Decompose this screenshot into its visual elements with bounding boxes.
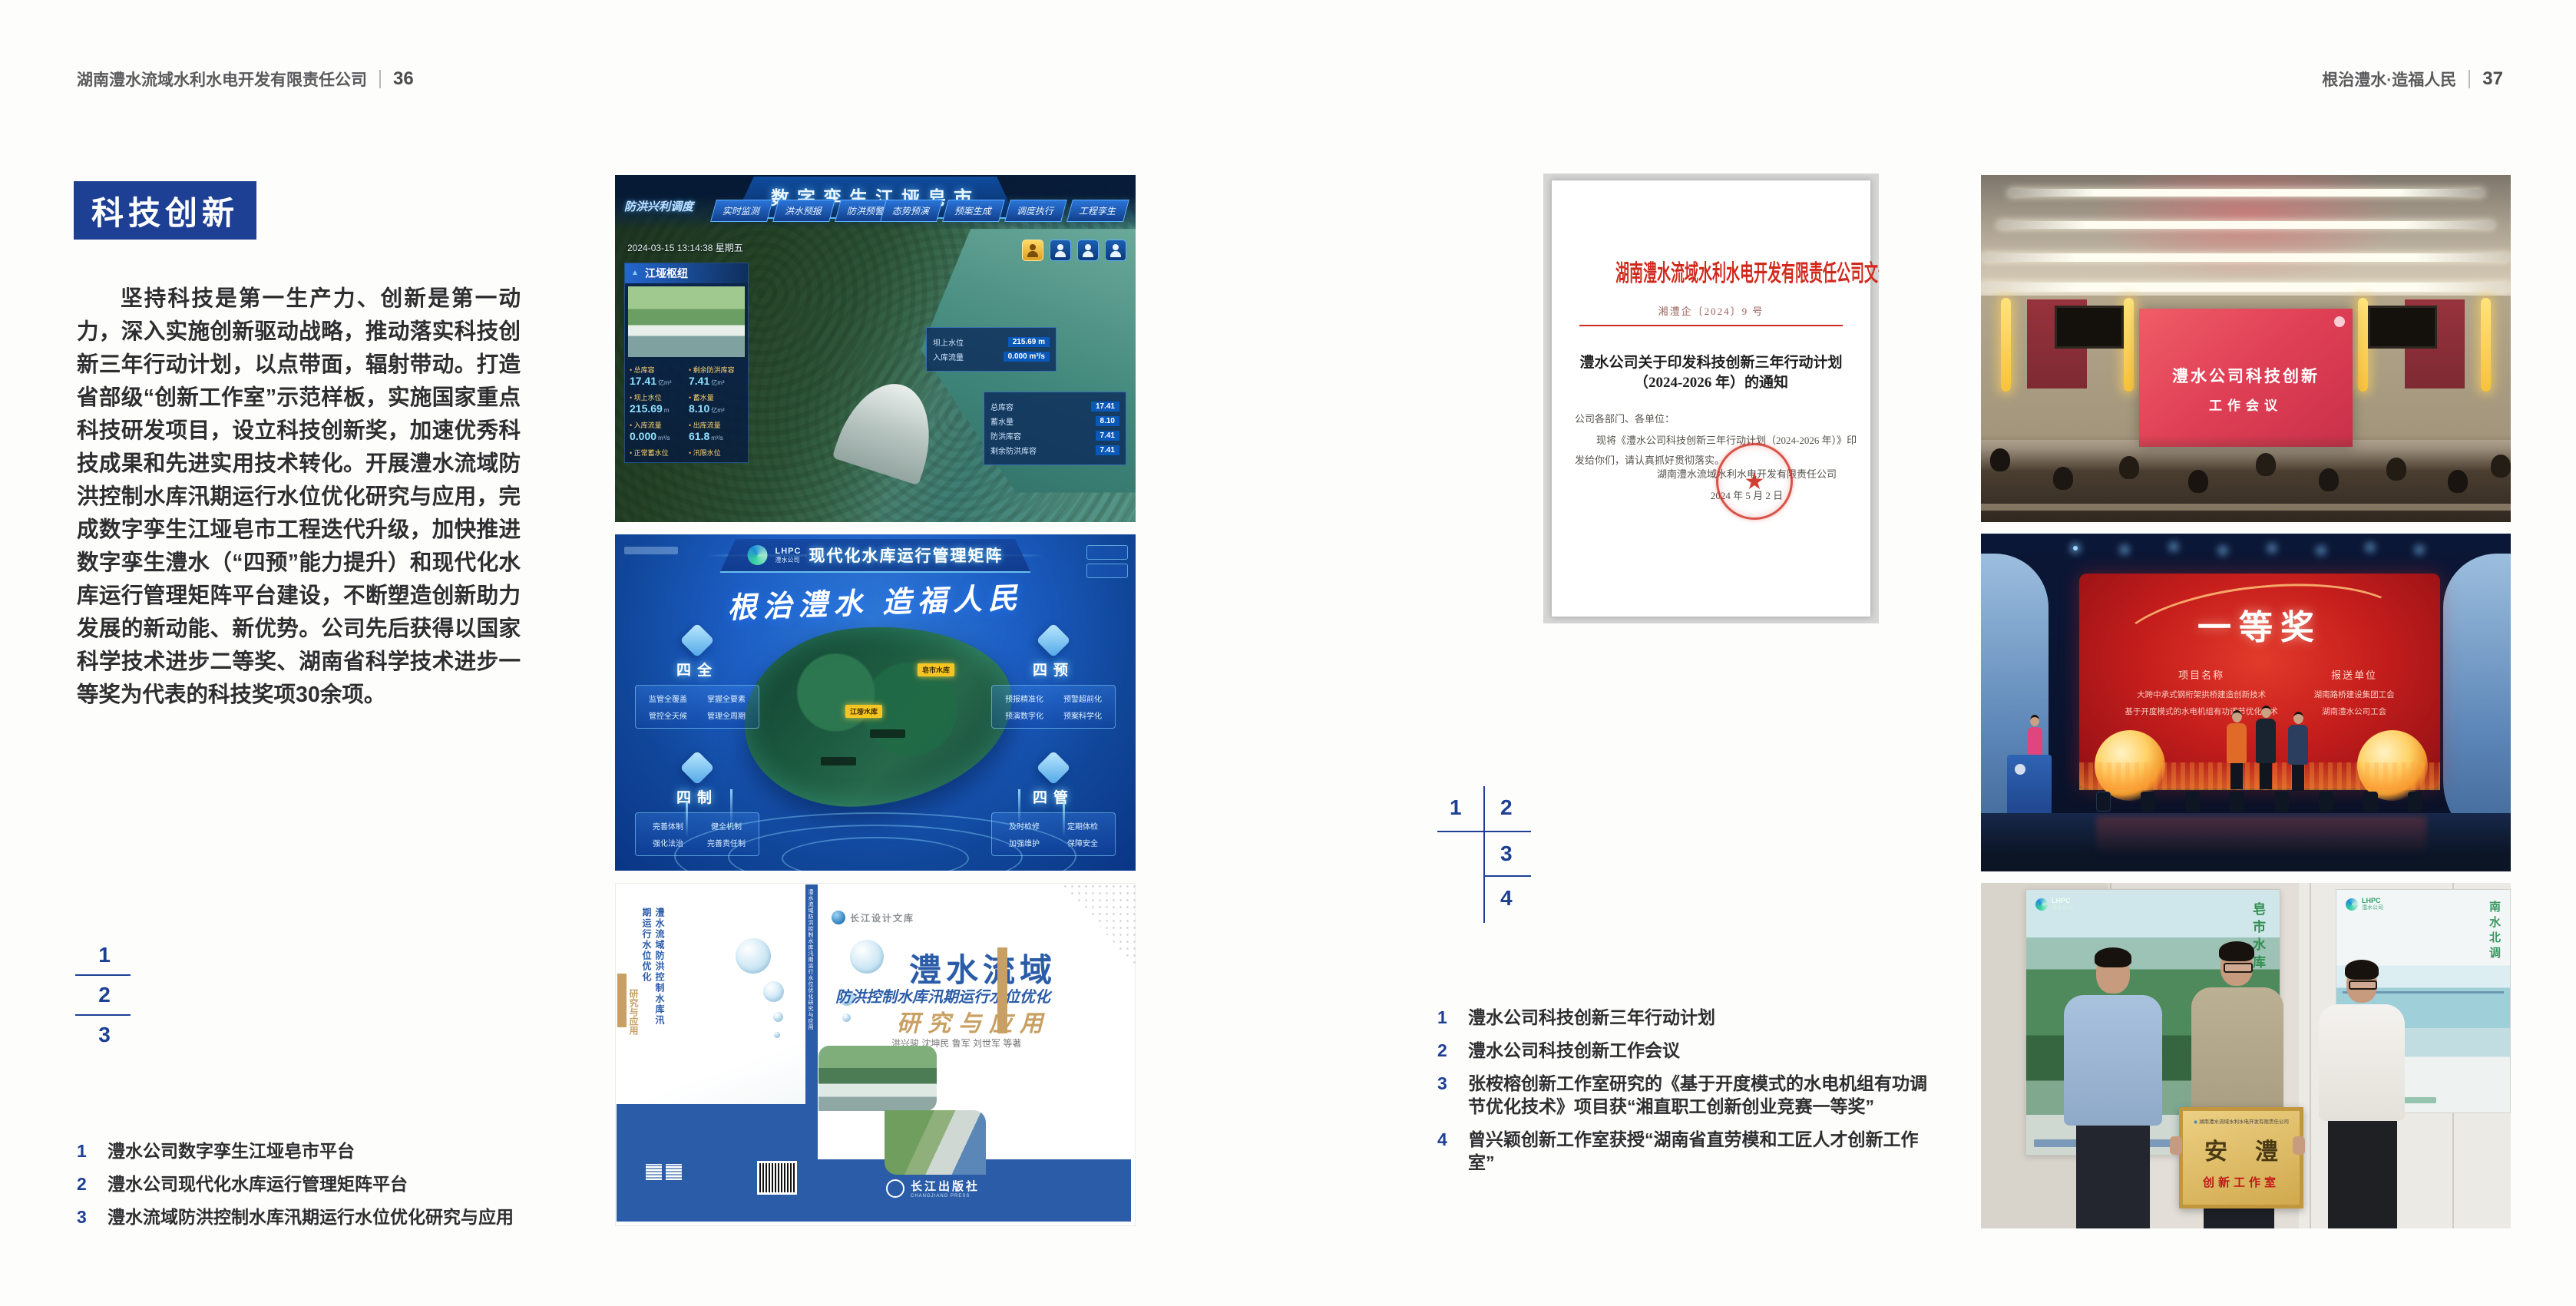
plaque-char: 安 <box>2204 1132 2227 1166</box>
panel-icon <box>1036 750 1070 785</box>
bubble-decoration <box>774 1032 780 1038</box>
figure-innovation-meeting: 澧水公司科技创新 工作会议 <box>1981 175 2511 522</box>
person-head <box>2096 954 2130 994</box>
bubble-decoration <box>850 940 884 974</box>
spine-title: 澧水流域防洪控制水库汛期运行水位优化研究与应用 <box>806 889 814 1119</box>
panel-item: 管理全周期 <box>699 709 754 721</box>
publisher-logo: 长江出版社 CHANGJIANG PRESS <box>886 1178 980 1199</box>
wall-lamp <box>2124 298 2134 392</box>
matrix-panel-siquan: 四全 监管全覆盖 掌握全要素 管控全天候 管理全周期 <box>635 628 759 729</box>
document-salutation: 公司各部门、各单位： <box>1575 411 1675 425</box>
ceremony-host <box>2025 715 2044 755</box>
caption-text: 澧水公司现代化水库运行管理矩阵平台 <box>107 1172 408 1195</box>
floor-reflection <box>2096 816 2426 856</box>
light-pillar <box>686 802 688 837</box>
wall-lamp <box>2001 298 2011 392</box>
caption-item: 2 澧水公司现代化水库运行管理矩阵平台 <box>77 1172 553 1195</box>
matrix-panel-button <box>1086 564 1128 578</box>
stat-label: 剩余防洪库容 <box>689 365 743 375</box>
stat-item: 入库流量 0.000m³/s <box>630 420 684 444</box>
poster-logo: LHPC 澧水公司 <box>2346 898 2383 911</box>
unit-name: 湖南路桥建设集团工会 <box>2314 689 2395 700</box>
person-head <box>2221 947 2253 986</box>
figure-key-divider <box>1437 831 1531 832</box>
station-panel-title: 江垭枢纽 <box>625 263 748 283</box>
logo-company: 澧水公司 <box>775 557 802 564</box>
dashboard-tab: 洪水预报 <box>772 200 835 222</box>
award-presenter <box>2254 706 2277 789</box>
summary-label: 蓄水量 <box>990 415 1014 427</box>
header-divider <box>2469 70 2470 88</box>
caption-text: 澧水公司科技创新工作会议 <box>1468 1039 1680 1062</box>
lhpc-logo-text: LHPC 澧水公司 <box>775 547 802 564</box>
header-divider <box>379 70 381 88</box>
panel-card: 监管全覆盖 掌握全要素 管控全天候 管理全周期 <box>635 685 759 729</box>
figure-book-cover: 澧水流域防洪控制水库汛期运行水位优化 研究与应用 澧水流域防洪控制水库汛期运行水… <box>615 883 1136 1226</box>
panel-card: 预报精准化 预警超前化 预演数字化 预案科学化 <box>991 685 1116 729</box>
summary-value: 7.41 <box>1096 431 1119 441</box>
stat-unit: m³/s <box>658 435 670 441</box>
logo-acronym: LHPC <box>775 547 802 557</box>
dashboard-tab: 态势预演 <box>880 200 943 222</box>
stat-unit: m³/s <box>711 435 723 441</box>
figure-official-document: 湖南澧水流域水利水电开发有限责任公司文件 湘澧企〔2024〕9 号 澧水公司关于… <box>1543 174 1879 623</box>
hand <box>2293 1136 2305 1155</box>
stat-label: 蓄水量 <box>689 392 743 402</box>
ceiling-light <box>2008 189 2485 197</box>
float-value: 215.69 m <box>1008 337 1050 347</box>
wall-lamp <box>2358 298 2368 392</box>
caption-number: 3 <box>1437 1072 1453 1118</box>
changjiang-design-logo-icon <box>832 911 845 924</box>
panel-title: 四管 <box>991 786 1116 807</box>
matrix-panel-button <box>1086 545 1128 560</box>
document-body-line1: 现将《澧水公司科技创新三年行动计划（2024-2026 年）》印 <box>1596 432 1857 447</box>
logo-acronym: LHPC <box>2362 898 2383 905</box>
bubble-decoration <box>842 1013 851 1022</box>
ceiling-light <box>1997 221 2495 229</box>
float-label: 坝上水位 <box>933 336 964 348</box>
caption-number: 2 <box>77 1172 92 1195</box>
minor-marker <box>870 729 905 738</box>
dashboard-float-card: 坝上水位215.69 m 入库流量0.000 m³/s <box>926 327 1057 372</box>
person-trousers <box>2328 1121 2397 1228</box>
barcode <box>757 1161 797 1195</box>
meeting-screen-title: 澧水公司科技创新 <box>2139 364 2353 387</box>
dashboard-tab: 预案生成 <box>942 200 1005 222</box>
summary-label: 剩余防洪库容 <box>990 445 1037 456</box>
matrix-panel-siyu: 四预 预报精准化 预警超前化 预演数字化 预案科学化 <box>991 628 1116 729</box>
logo-company: 澧水公司 <box>2362 905 2383 911</box>
series-name: 长江设计文库 <box>850 911 914 924</box>
caption-text: 澧水公司科技创新三年行动计划 <box>1468 1006 1715 1029</box>
summary-label: 总库容 <box>990 401 1014 412</box>
caption-number: 1 <box>77 1139 92 1162</box>
matrix-slogan: 根治澧水 造福人民 <box>726 574 1023 626</box>
station-stats: 总库容 17.41亿m³ 剩余防洪库容 7.41亿m³ 坝上水位 215.69m… <box>625 360 748 462</box>
figure-award-ceremony: 一等奖 项目名称 大跨中承式钢桁架拱桥建造创新技术 基于开度模式的水电机组有功调… <box>1981 534 2511 871</box>
person-shirt <box>2319 1004 2405 1121</box>
panel-item: 预案科学化 <box>1055 709 1110 721</box>
light-pillar <box>1018 789 1020 825</box>
station-thumbnail <box>628 286 745 357</box>
figure-key-2: 2 <box>75 978 134 1012</box>
person-trousers <box>2076 1126 2150 1228</box>
unit-name: 湖南澧水公司工会 <box>2314 706 2395 717</box>
right-page-number: 37 <box>2482 68 2503 90</box>
lhpc-logo-icon <box>748 545 768 565</box>
person-left <box>2050 954 2181 1228</box>
left-caption-list: 1 澧水公司数字孪生江垭皂市平台 2 澧水公司现代化水库运行管理矩阵平台 3 澧… <box>77 1139 553 1238</box>
poster-logo: LHPC 澧水公司 <box>2035 898 2073 911</box>
section-body-text: 坚持科技是第一生产力、创新是第一动力，深入实施创新驱动战略，推动落实科技创新三年… <box>77 283 521 712</box>
official-seal: ★ <box>1716 443 1793 520</box>
summary-value: 17.41 <box>1091 402 1119 412</box>
meeting-screen-subtitle: 工作会议 <box>2139 395 2353 414</box>
figure-reservoir-matrix: LHPC 澧水公司 现代化水库运行管理矩阵 根治澧水 造福人民 皂市水库 江垭水… <box>615 534 1136 871</box>
logo-company: 澧水公司 <box>2052 905 2073 911</box>
locate-icon <box>1077 240 1099 261</box>
publisher-logo-icon <box>886 1179 904 1198</box>
stat-label: 坝上水位 <box>630 392 684 402</box>
caption-item: 1 澧水公司科技创新三年行动计划 <box>1437 1006 1959 1029</box>
summary-label: 防洪库容 <box>990 430 1021 441</box>
wall-lamp <box>2481 298 2491 392</box>
seal-star-icon: ★ <box>1744 468 1765 495</box>
audience-heads <box>1990 448 2010 471</box>
stat-item: 汛限水位 <box>689 448 743 458</box>
alert-icon <box>1105 240 1126 261</box>
stat-unit: 亿m³ <box>658 379 671 386</box>
back-tan-bar <box>617 974 627 1027</box>
caption-text: 曾兴颖创新工作室获授“湖南省直劳模和工匠人才创新工作室” <box>1468 1128 1940 1174</box>
reservoir-marker: 皂市水库 <box>918 663 954 676</box>
document-title-line2: （2024-2026 年）的通知 <box>1552 371 1870 392</box>
figure-digital-twin-dashboard: 数字孪生江垭皂市 防洪兴利调度 实时监测 洪水预报 防洪预警 态势预演 预案生成… <box>615 175 1136 522</box>
stat-item: 蓄水量 8.10亿m³ <box>689 392 743 416</box>
stat-label: 正常蓄水位 <box>630 448 684 458</box>
caption-text: 澧水流域防洪控制水库汛期运行水位优化研究与应用 <box>107 1205 514 1228</box>
dam-photo-1 <box>818 1046 937 1111</box>
figure-key-1: 1 <box>75 938 134 972</box>
figure-key-1: 1 <box>1450 795 1462 820</box>
bubble-decoration <box>763 981 784 1002</box>
plaque-subtitle: 创新工作室 <box>2183 1174 2300 1190</box>
figure-key-divider <box>1483 786 1485 923</box>
stage-light-fixtures <box>2096 792 2111 812</box>
panel-item: 预警超前化 <box>1055 693 1110 704</box>
document-number: 湘澧企〔2024〕9 号 <box>1552 303 1870 318</box>
figure-key-3: 3 <box>75 1018 134 1052</box>
section-title: 科技创新 <box>74 181 256 240</box>
figure-key-divider <box>1483 875 1531 877</box>
figure-key-3: 3 <box>1500 841 1513 866</box>
award-winner <box>2225 710 2248 789</box>
publisher-name-en: CHANGJIANG PRESS <box>911 1194 980 1199</box>
stat-item: 总库容 17.41亿m³ <box>630 365 684 388</box>
right-caption-list: 1 澧水公司科技创新三年行动计划 2 澧水公司科技创新工作会议 3 张桉榕创新工… <box>1437 1006 1959 1184</box>
figure-key-divider <box>75 974 131 976</box>
stat-item: 坝上水位 215.69m <box>630 392 684 416</box>
stat-label: 出库流量 <box>689 420 743 430</box>
stat-label: 总库容 <box>630 365 684 375</box>
dashboard-toolbar <box>1022 240 1126 261</box>
lhpc-logo-icon <box>2035 898 2048 911</box>
stat-label: 入库流量 <box>630 420 684 430</box>
dashboard-right-tabs: 态势预演 预案生成 调度执行 工程孪生 <box>883 200 1126 222</box>
stage-spotlights <box>2073 546 2078 551</box>
ceiling-light <box>1981 283 2511 292</box>
user-icon <box>1022 240 1043 261</box>
right-figure-number-key: 1 2 3 4 <box>1434 782 1542 935</box>
book-title-sub: 防洪控制水库汛期运行水位优化 <box>835 984 1050 1007</box>
caption-item: 3 澧水流域防洪控制水库汛期运行水位优化研究与应用 <box>77 1205 553 1228</box>
caption-item: 2 澧水公司科技创新工作会议 <box>1437 1039 1959 1062</box>
back-vertical-subtitle: 研究与应用 <box>627 989 640 1043</box>
light-pillar <box>1063 802 1065 837</box>
light-pillar <box>730 789 732 825</box>
panel-title: 四预 <box>991 659 1116 679</box>
stat-value: 17.41 <box>630 375 656 387</box>
float-value: 0.000 m³/s <box>1004 352 1050 362</box>
stage-side-panel <box>2443 554 2511 850</box>
book-title-tail: 研究与应用 <box>897 1004 1050 1038</box>
bubble-decoration <box>773 1012 783 1022</box>
dashboard-tab: 工程孪生 <box>1066 200 1129 222</box>
meeting-projection-screen: 澧水公司科技创新 工作会议 <box>2139 309 2353 447</box>
right-page-header: 根治澧水·造福人民 37 <box>2322 68 2503 91</box>
figure-workshop-plaque: LHPC 澧水公司 皂市水库 LHPC 澧水公司 南水北调 <box>1981 883 2511 1228</box>
stat-unit: m <box>664 407 670 414</box>
caption-text: 张桉榕创新工作室研究的《基于开度模式的水电机组有功调节优化技术》项目获“湘直职工… <box>1468 1072 1940 1118</box>
summary-value: 7.41 <box>1096 445 1119 455</box>
document-title-line1: 澧水公司关于印发科技创新三年行动计划 <box>1552 351 1870 372</box>
panel-icon <box>680 750 714 785</box>
dashboard-tab: 调度执行 <box>1004 200 1067 222</box>
stat-unit: 亿m³ <box>711 379 724 386</box>
document-red-header: 湖南澧水流域水利水电开发有限责任公司文件 <box>1615 254 1807 288</box>
stat-value: 7.41 <box>689 375 709 387</box>
panel-item: 预演数字化 <box>997 709 1052 721</box>
stat-item: 出库流量 61.8m³/s <box>689 420 743 444</box>
caption-number: 1 <box>1437 1006 1453 1029</box>
back-vertical-title: 澧水流域防洪控制水库汛期运行水位优化 <box>640 908 666 1030</box>
ceiling-light <box>1981 253 2511 262</box>
panel-icon <box>1036 623 1070 657</box>
panel-icon <box>680 623 714 657</box>
front-tan-bar <box>997 947 1007 1033</box>
dashboard-tab: 实时监测 <box>710 200 773 222</box>
award-winner <box>2287 712 2310 791</box>
panel-title: 四全 <box>635 659 759 679</box>
bubble-decoration <box>736 938 771 974</box>
figure-key-4: 4 <box>1500 886 1513 911</box>
wall-tv-screen <box>2055 306 2124 349</box>
plaque-char: 澧 <box>2255 1132 2278 1166</box>
float-label: 入库流量 <box>933 351 964 362</box>
stat-item: 正常蓄水位 <box>630 448 684 458</box>
publisher-name: 长江出版社 <box>911 1178 980 1194</box>
left-figure-number-key: 1 2 3 <box>75 938 134 1052</box>
panel-item: 监管全覆盖 <box>640 693 696 704</box>
hand <box>2170 1136 2182 1155</box>
poster-calligraphy: 南水北调 <box>2486 901 2502 962</box>
stat-label: 汛限水位 <box>689 448 743 458</box>
person-head <box>2346 966 2377 1003</box>
dashboard-summary-card: 总库容17.41 蓄水量8.10 防洪库容7.41 剩余防洪库容7.41 <box>984 392 1126 465</box>
wall-tv-screen <box>2368 306 2437 349</box>
figure-key-divider <box>75 1014 131 1016</box>
reservoir-marker: 江垭水库 <box>845 705 882 718</box>
stat-value: 0.000 <box>630 430 656 442</box>
panel-item: 管控全天候 <box>640 709 696 721</box>
caption-item: 1 澧水公司数字孪生江垭皂市平台 <box>77 1139 553 1162</box>
panel-item: 预报精准化 <box>997 693 1052 704</box>
dashboard-station-panel: 江垭枢纽 总库容 17.41亿m³ 剩余防洪库容 7.41亿m³ 坝上水位 21… <box>624 263 749 463</box>
stat-item: 剩余防洪库容 7.41亿m³ <box>689 365 743 388</box>
caption-number: 3 <box>77 1205 92 1228</box>
caption-number: 2 <box>1437 1039 1453 1062</box>
caption-text: 澧水公司数字孪生江垭皂市平台 <box>107 1139 355 1162</box>
caption-item: 4 曾兴颖创新工作室获授“湖南省直劳模和工匠人才创新工作室” <box>1437 1128 1959 1174</box>
person-shirt <box>2064 995 2162 1126</box>
stat-value: 61.8 <box>689 430 709 442</box>
dashboard-datetime: 2024-03-15 13:14:38 星期五 <box>627 241 743 254</box>
operator-icon <box>1050 240 1071 261</box>
document-page: 湖南澧水流域水利水电开发有限责任公司文件 湘澧企〔2024〕9 号 澧水公司关于… <box>1551 180 1871 617</box>
qr-code <box>646 1164 662 1180</box>
company-name: 湖南澧水流域水利水电开发有限责任公司 <box>77 68 367 91</box>
caption-item: 3 张桉榕创新工作室研究的《基于开度模式的水电机组有功调节优化技术》项目获“湘直… <box>1437 1072 1959 1118</box>
matrix-header: LHPC 澧水公司 现代化水库运行管理矩阵 <box>720 539 1031 573</box>
stat-value: 8.10 <box>689 402 709 415</box>
plaque-name: 安 澧 <box>2183 1132 2300 1166</box>
left-page-header: 湖南澧水流域水利水电开发有限责任公司 36 <box>77 68 414 91</box>
summary-value: 8.10 <box>1096 416 1119 426</box>
magazine-spread: 湖南澧水流域水利水电开发有限责任公司 36 根治澧水·造福人民 37 科技创新 … <box>0 0 2576 1306</box>
document-red-rule <box>1579 325 1843 326</box>
document-body-line2: 发给你们，请认真抓好贯彻落实。 <box>1575 452 1724 467</box>
left-page-number: 36 <box>393 68 414 90</box>
dam-photo-2 <box>885 1110 986 1175</box>
caption-number: 4 <box>1437 1128 1453 1174</box>
dashboard-system-label: 防洪兴利调度 <box>624 198 693 214</box>
logo-acronym: LHPC <box>2052 898 2073 905</box>
matrix-datetime-chip <box>624 547 678 554</box>
figure-key-2: 2 <box>1500 795 1513 820</box>
meeting-tables <box>1981 504 2511 511</box>
panel-item: 掌握全要素 <box>699 693 754 704</box>
plaque-company-line: 湖南澧水流域水利水电开发有限责任公司 <box>2183 1117 2300 1125</box>
stat-value: 215.69 <box>630 402 663 415</box>
minor-marker <box>821 757 856 765</box>
matrix-title: 现代化水库运行管理矩阵 <box>809 544 1003 567</box>
workshop-plaque: 湖南澧水流域水利水电开发有限责任公司 安 澧 创新工作室 <box>2179 1107 2303 1208</box>
lhpc-logo-icon <box>2346 898 2358 911</box>
slogan-text: 根治澧水·造福人民 <box>2322 68 2456 91</box>
person-right <box>2303 966 2419 1228</box>
dashboard-left-tabs: 实时监测 洪水预报 防洪预警 <box>713 200 894 222</box>
qr-code <box>666 1164 682 1180</box>
series-logo: 长江设计文库 <box>832 911 914 924</box>
person-shirt <box>2191 987 2283 1119</box>
stat-unit: 亿m³ <box>711 407 724 414</box>
panel-title: 四制 <box>635 786 759 807</box>
